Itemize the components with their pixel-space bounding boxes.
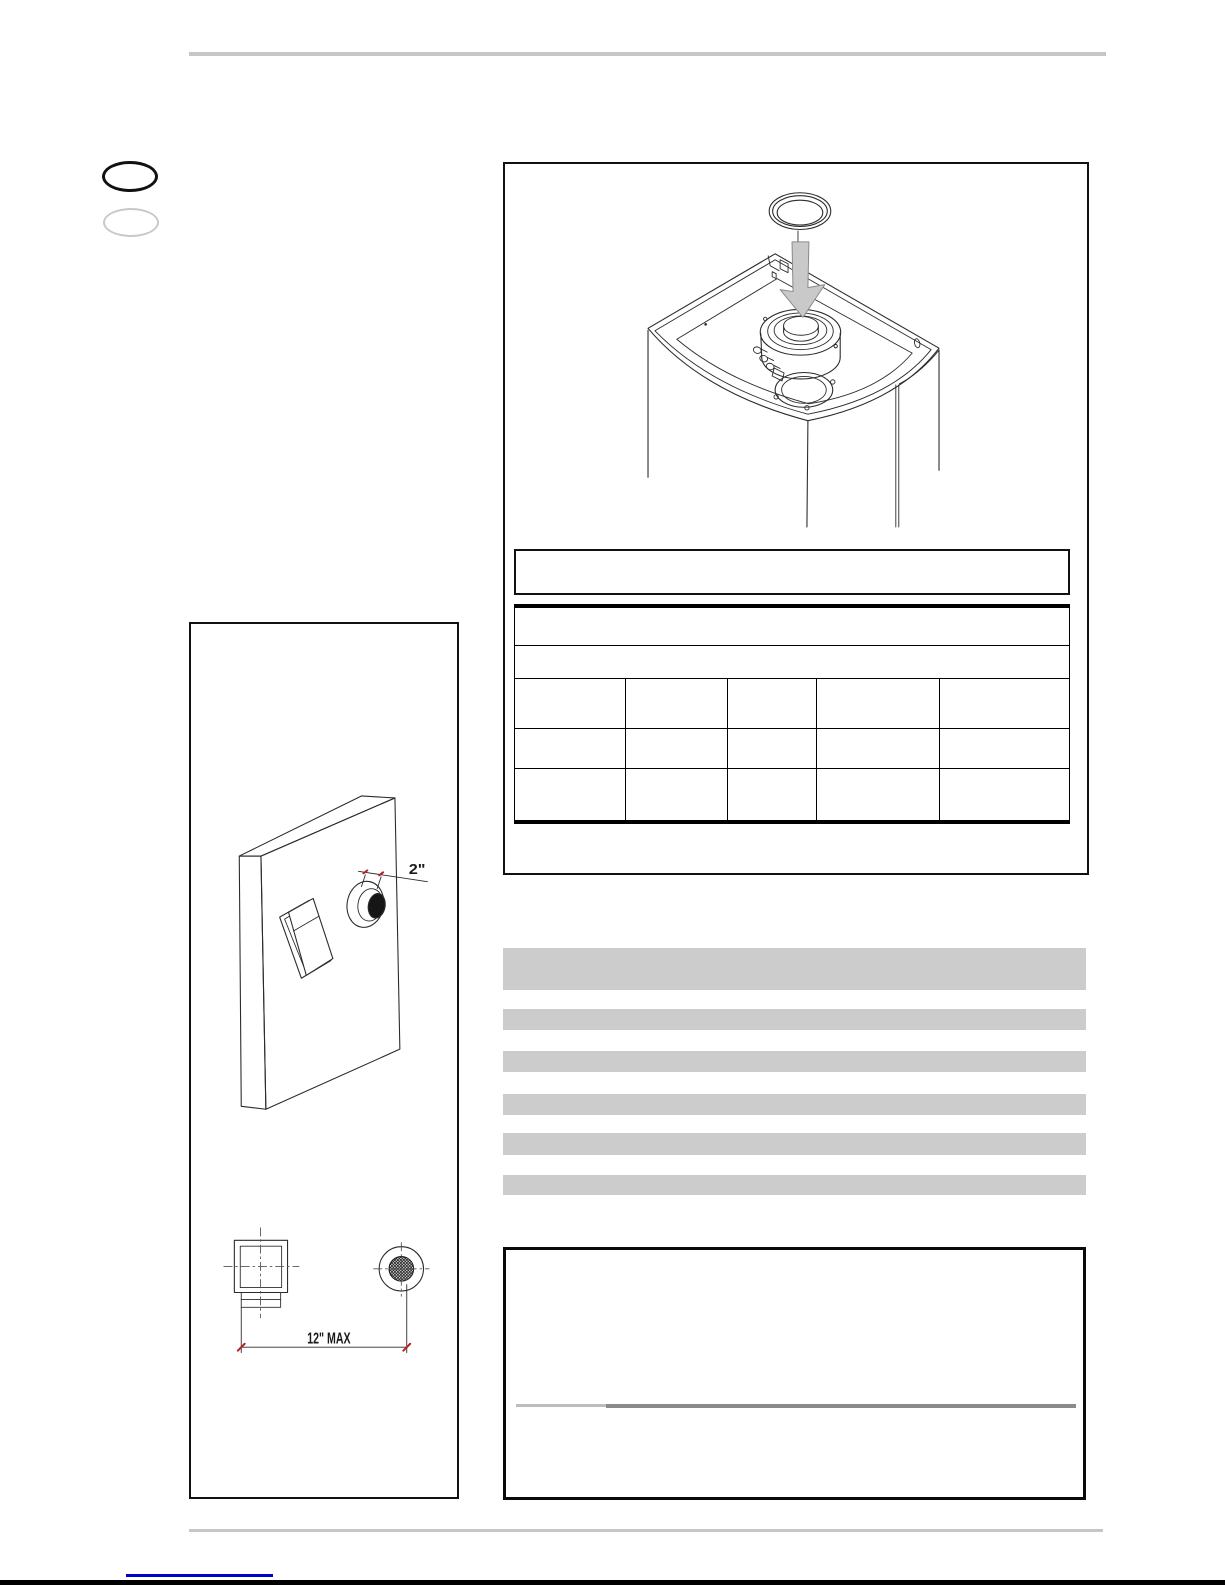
max-distance-dimension: 12" MAX [238,1285,410,1353]
table-header-row [515,679,1069,729]
table-cell [728,769,817,820]
flue-collar [760,309,840,379]
header-rule [189,52,1106,56]
manual-page: { "colors": { "page-bg": "#ffffff", "lin… [0,0,1225,1585]
table-cell [817,769,941,820]
table-cell [940,729,1069,768]
note-divider-right [606,1404,1076,1408]
table-subtitle-row [515,646,1069,679]
table-title-row [515,608,1069,646]
table-cell [626,729,728,768]
air-intake-opening [774,373,835,410]
table-cell [817,729,941,768]
table-cell [515,769,626,820]
page-bottom-edge [0,1580,1225,1585]
table-cell [940,769,1069,820]
table-cell [728,729,817,768]
table-header-cell [626,679,728,728]
highlighted-text-line [503,1175,1086,1195]
table-cell [515,729,626,768]
insert-direction-arrow-icon [780,242,825,317]
boiler-cabinet-sides [648,330,939,527]
highlighted-text-line [503,1133,1086,1155]
highlighted-text-line [503,1051,1086,1072]
dimension-2in-label: 2" [409,862,426,878]
footer-rule [189,1529,1103,1532]
dimension-12in-max-label: 12" MAX [307,1331,351,1348]
spec-table [514,604,1070,824]
table-header-cell [515,679,626,728]
table-header-cell [728,679,817,728]
highlighted-text-line [503,1009,1086,1030]
step-marker-inactive-oval [103,208,159,237]
terminal-offset-dimension: 2" [358,862,427,889]
isolation-switch [280,898,333,978]
note-divider-left [516,1404,606,1407]
flue-terminal [343,878,387,930]
footer-link-underline[interactable] [126,1574,273,1577]
table-cell [626,769,728,820]
note-box [503,1247,1086,1500]
flue-adapter-ring [769,193,831,230]
front-view-switch-box [234,1240,287,1307]
table-header-cell [940,679,1069,728]
highlighted-text-line [503,1094,1086,1115]
step-marker-active-oval [102,161,158,192]
wall-terminal-drawing: 2" 12" MAX [191,624,457,1497]
figure-caption-box [514,549,1070,595]
highlighted-text-line [503,948,1086,990]
table-row [515,729,1069,769]
table-row [515,769,1069,820]
table-header-cell [817,679,941,728]
wall-terminal-panel: 2" 12" MAX [189,622,459,1499]
